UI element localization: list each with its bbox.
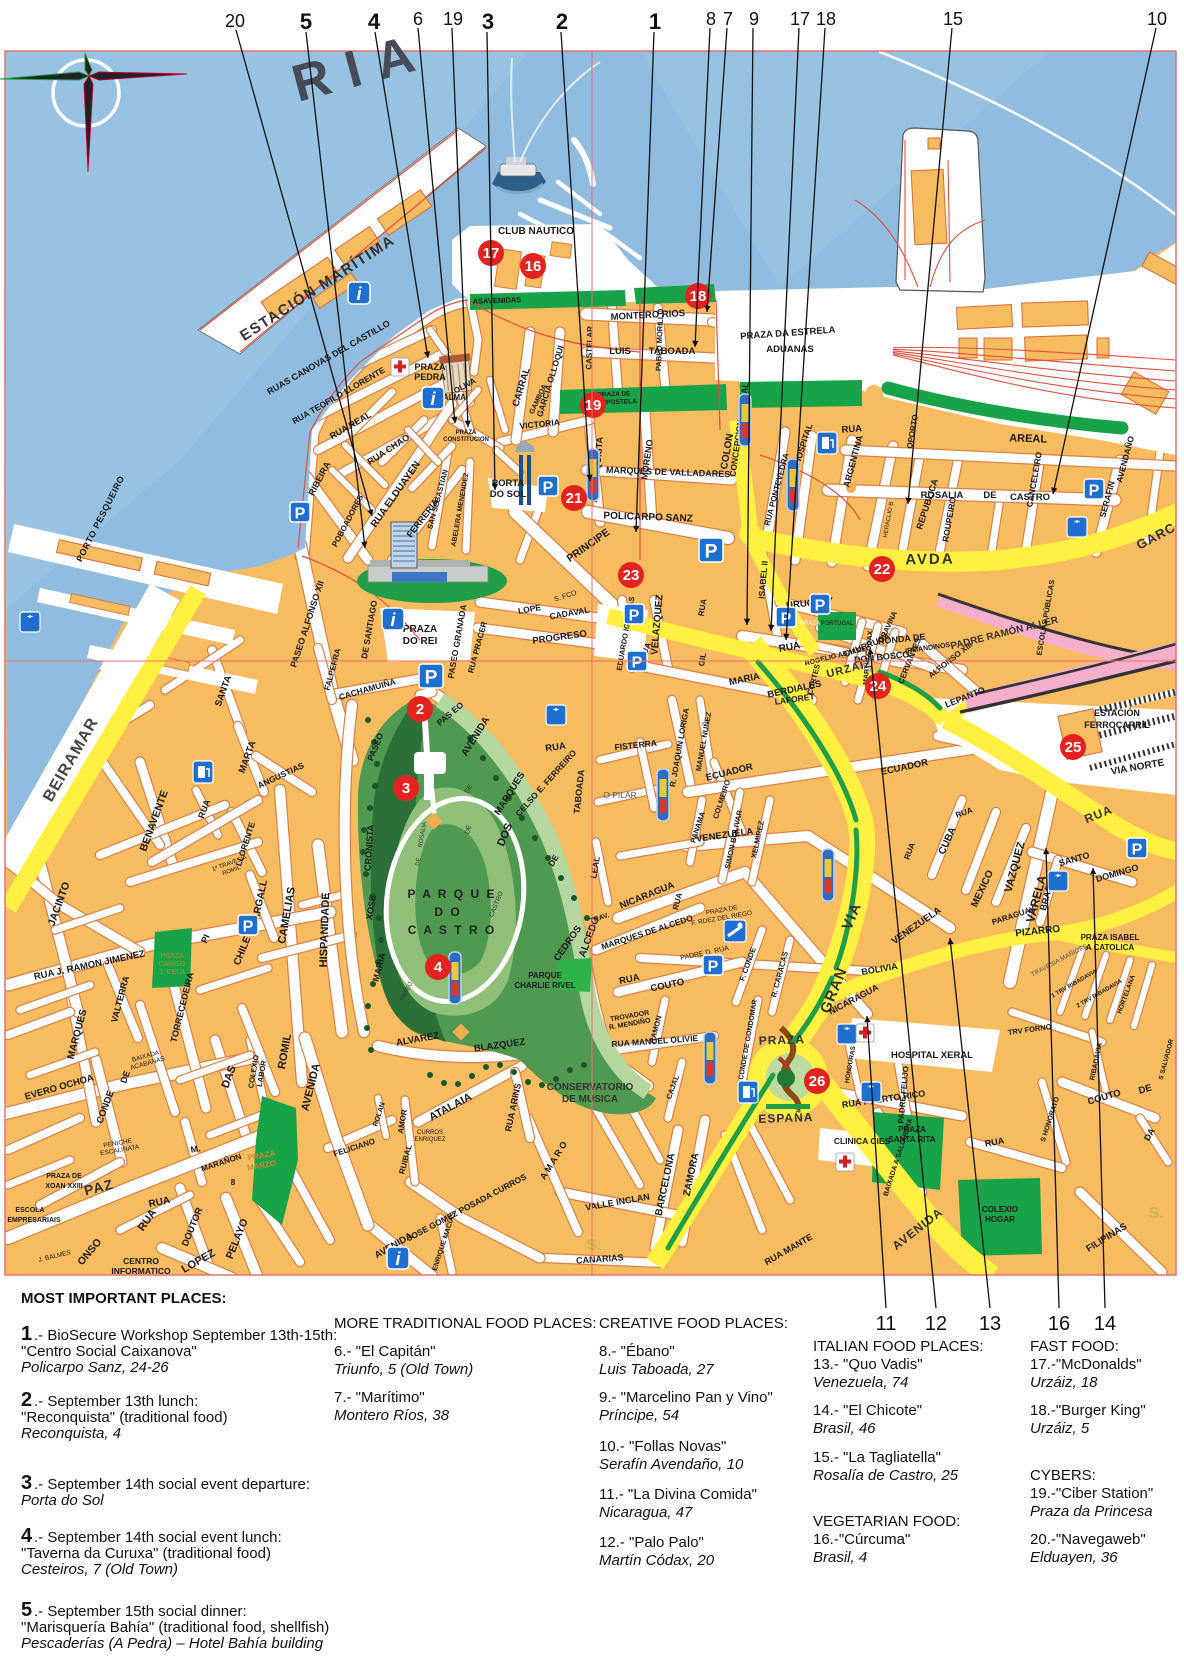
svg-text:P: P: [629, 607, 640, 624]
svg-text:CURROS: CURROS: [417, 1130, 443, 1136]
svg-text:FAST FOOD:: FAST FOOD:: [1030, 1338, 1119, 1355]
svg-text:.- September 13th lunch:: .- September 13th lunch:: [34, 1393, 198, 1410]
svg-text:CAMILO: CAMILO: [159, 961, 186, 968]
svg-text:ITALIAN FOOD PLACES:: ITALIAN FOOD PLACES:: [813, 1338, 984, 1355]
svg-text:ASAVENIDAS: ASAVENIDAS: [472, 295, 521, 306]
svg-text:M.: M.: [190, 1143, 202, 1155]
svg-text:ADUANAS: ADUANAS: [766, 344, 814, 355]
svg-text:PRAZA: PRAZA: [758, 1032, 805, 1048]
svg-text:MOST IMPORTANT PLACES:: MOST IMPORTANT PLACES:: [21, 1290, 227, 1307]
svg-text:CENTRO: CENTRO: [123, 1256, 159, 1266]
svg-text:HOGAR: HOGAR: [985, 1215, 1015, 1224]
svg-text:PEDRA: PEDRA: [414, 372, 446, 382]
svg-text:15: 15: [943, 9, 963, 29]
svg-text:P: P: [708, 958, 719, 975]
svg-text:Cesteiros, 7 (Old Town): Cesteiros, 7 (Old Town): [21, 1561, 178, 1578]
svg-text:Rosalía de Castro, 25: Rosalía de Castro, 25: [813, 1467, 959, 1484]
svg-text:11: 11: [876, 1313, 897, 1335]
svg-text:P: P: [781, 610, 792, 627]
svg-text:VEGETARIAN FOOD:: VEGETARIAN FOOD:: [813, 1513, 960, 1530]
svg-text:Venezuela, 74: Venezuela, 74: [813, 1374, 908, 1391]
svg-text:RUA: RUA: [841, 423, 862, 435]
svg-text:ESCOLA: ESCOLA: [15, 1207, 44, 1214]
svg-text:9.- "Marcelino Pan y Vino": 9.- "Marcelino Pan y Vino": [599, 1389, 773, 1406]
svg-text:8: 8: [706, 9, 716, 29]
svg-text:PRAZA: PRAZA: [456, 430, 477, 436]
svg-text:20.-"Navegaweb": 20.-"Navegaweb": [1030, 1531, 1146, 1548]
svg-text:D O: D O: [434, 905, 461, 919]
svg-text:4: 4: [434, 959, 443, 976]
svg-text:Brasil, 46: Brasil, 46: [813, 1420, 876, 1437]
svg-text:11.- "La Divina Comida": 11.- "La Divina Comida": [599, 1486, 757, 1503]
svg-text:"Centro Social Caixanova": "Centro Social Caixanova": [21, 1343, 197, 1360]
svg-text:SANTA RITA: SANTA RITA: [889, 1135, 936, 1144]
svg-text:10: 10: [1147, 9, 1167, 29]
svg-text:16: 16: [525, 258, 542, 275]
svg-text:C A S T R O: C A S T R O: [408, 923, 496, 937]
svg-text:20: 20: [225, 11, 245, 31]
svg-text:21: 21: [566, 490, 583, 507]
svg-text:P: P: [632, 654, 643, 671]
svg-text:CYBERS:: CYBERS:: [1030, 1467, 1096, 1484]
svg-text:FERROCARRIL: FERROCARRIL: [1084, 720, 1150, 730]
svg-text:"Marisquería Bahía" (tradition: "Marisquería Bahía" (traditional food, s…: [21, 1619, 329, 1636]
svg-text:5: 5: [21, 1599, 32, 1621]
svg-text:Príncipe, 54: Príncipe, 54: [599, 1407, 679, 1424]
svg-text:2: 2: [556, 9, 568, 34]
svg-text:9: 9: [749, 9, 759, 29]
svg-text:P: P: [815, 597, 826, 614]
svg-text:3: 3: [21, 1472, 32, 1494]
svg-text:PRAZA ISABEL: PRAZA ISABEL: [1081, 933, 1140, 942]
svg-text:19.-"Ciber Station": 19.-"Ciber Station": [1030, 1485, 1153, 1502]
svg-text:A CATOLICA: A CATOLICA: [1086, 943, 1135, 952]
svg-text:CHARLIE RIVEL: CHARLIE RIVEL: [514, 981, 575, 990]
svg-text:PRAZA DE: PRAZA DE: [46, 1173, 82, 1180]
svg-text:10.- "Follas Novas": 10.- "Follas Novas": [599, 1438, 726, 1455]
svg-text:Porta do Sol: Porta do Sol: [21, 1492, 104, 1509]
svg-text:Martín Códax, 20: Martín Códax, 20: [599, 1552, 715, 1569]
svg-text:13: 13: [979, 1313, 1001, 1335]
svg-text:CONSTITUCION: CONSTITUCION: [443, 437, 489, 443]
svg-text:5: 5: [300, 9, 312, 34]
svg-text:P: P: [425, 668, 438, 689]
svg-text:ENRIQUEZ: ENRIQUEZ: [414, 1137, 445, 1143]
svg-text:19: 19: [443, 9, 463, 29]
svg-text:CASTELAR: CASTELAR: [584, 326, 595, 370]
svg-text:14: 14: [1094, 1313, 1116, 1335]
svg-text:26: 26: [809, 1073, 826, 1090]
svg-text:LUIS: LUIS: [609, 346, 631, 357]
svg-text:PRAZA: PRAZA: [415, 362, 446, 372]
svg-text:Urzáiz, 18: Urzáiz, 18: [1030, 1374, 1098, 1391]
svg-text:S.: S.: [1148, 1205, 1163, 1222]
svg-text:COLEXIO: COLEXIO: [982, 1205, 1018, 1214]
svg-text:7: 7: [723, 9, 733, 29]
svg-text:Montero Ríos, 38: Montero Ríos, 38: [334, 1407, 450, 1424]
svg-text:24: 24: [870, 678, 887, 695]
svg-text:17: 17: [790, 9, 810, 29]
svg-text:2: 2: [21, 1389, 32, 1411]
svg-text:P: P: [1132, 841, 1143, 858]
svg-text:8: 8: [231, 1178, 236, 1187]
svg-text:P: P: [1089, 482, 1100, 499]
svg-text:PRAZA: PRAZA: [403, 624, 437, 635]
svg-text:16.-"Cúrcuma": 16.-"Cúrcuma": [813, 1531, 910, 1548]
svg-text:S.: S.: [586, 1237, 601, 1254]
svg-text:.- September 14th social event: .- September 14th social event lunch:: [34, 1529, 282, 1546]
svg-text:4: 4: [21, 1525, 33, 1547]
svg-text:P: P: [243, 918, 254, 935]
svg-text:DO REI: DO REI: [403, 636, 438, 647]
svg-text:ESTACIÓN: ESTACIÓN: [1094, 707, 1140, 718]
svg-text:6: 6: [413, 9, 423, 29]
svg-text:13.- "Quo Vadis": 13.- "Quo Vadis": [813, 1356, 923, 1373]
svg-text:14.- "El Chicote": 14.- "El Chicote": [813, 1402, 922, 1419]
svg-text:DE MUSICA: DE MUSICA: [562, 1094, 618, 1105]
svg-text:Urzáiz, 5: Urzáiz, 5: [1030, 1420, 1090, 1437]
svg-text:XOAN XXIII: XOAN XXIII: [45, 1183, 82, 1190]
svg-text:12: 12: [925, 1313, 947, 1335]
svg-text:7.- "Marítimo": 7.- "Marítimo": [334, 1389, 425, 1406]
svg-text:19: 19: [585, 397, 602, 414]
svg-text:Elduayen, 36: Elduayen, 36: [1030, 1549, 1118, 1566]
svg-text:16: 16: [1048, 1313, 1070, 1335]
svg-text:CLINICA CIES: CLINICA CIES: [834, 1136, 891, 1146]
svg-text:TABOADA: TABOADA: [649, 346, 696, 357]
svg-text:Policarpo Sanz, 24-26: Policarpo Sanz, 24-26: [21, 1359, 169, 1376]
svg-text:18.-"Burger King": 18.-"Burger King": [1030, 1402, 1146, 1419]
svg-text:6.- "El Capitán": 6.- "El Capitán": [334, 1343, 436, 1360]
svg-text:DO SOL: DO SOL: [490, 489, 527, 500]
svg-text:Luis Taboada, 27: Luis Taboada, 27: [599, 1361, 714, 1378]
svg-text:2: 2: [416, 701, 424, 718]
svg-text:12.- "Palo Palo": 12.- "Palo Palo": [599, 1534, 704, 1551]
svg-text:PARQUE: PARQUE: [528, 971, 562, 980]
svg-text:PRAZA: PRAZA: [160, 953, 184, 960]
svg-text:25: 25: [1065, 739, 1082, 756]
svg-text:"Taverna da Curuxa" (tradition: "Taverna da Curuxa" (traditional food): [21, 1545, 271, 1562]
svg-text:P: P: [705, 542, 718, 563]
svg-text:AREAL: AREAL: [1009, 432, 1048, 445]
svg-text:8.- "Ébano": 8.- "Ébano": [599, 1343, 675, 1360]
svg-text:EMPRESARIAIS: EMPRESARIAIS: [7, 1217, 61, 1224]
svg-text:3: 3: [402, 780, 410, 797]
svg-text:Pescaderías (A Pedra) – Hotel: Pescaderías (A Pedra) – Hotel Bahía buil…: [21, 1635, 324, 1652]
svg-text:.- September 15th social dinne: .- September 15th social dinner:: [34, 1603, 247, 1620]
svg-text:Serafín Avendaño, 10: Serafín Avendaño, 10: [599, 1456, 744, 1473]
svg-text:P A R Q U E: P A R Q U E: [408, 887, 497, 901]
svg-text:4: 4: [368, 9, 381, 34]
svg-text:15.- "La Tagliatella": 15.- "La Tagliatella": [813, 1449, 941, 1466]
svg-text:23: 23: [623, 567, 640, 584]
svg-text:AVDA: AVDA: [905, 551, 955, 569]
svg-text:.- BioSecure Workshop Septembe: .- BioSecure Workshop September 13th-15t…: [34, 1327, 337, 1344]
svg-text:HOSPITAL XERAL: HOSPITAL XERAL: [891, 1050, 973, 1061]
svg-text:"Reconquista" (traditional foo: "Reconquista" (traditional food): [21, 1409, 228, 1426]
svg-text:Nicaragua, 47: Nicaragua, 47: [599, 1504, 693, 1521]
svg-text:CONSERVATORIO: CONSERVATORIO: [547, 1082, 634, 1093]
svg-text:PORTUGAL: PORTUGAL: [821, 621, 855, 627]
svg-text:O PILAR: O PILAR: [603, 790, 637, 800]
svg-text:Praza da Princesa: Praza da Princesa: [1030, 1503, 1153, 1520]
svg-text:P: P: [295, 505, 306, 522]
svg-text:.- September 14th social event: .- September 14th social event departure…: [34, 1476, 310, 1493]
svg-text:PORTA: PORTA: [492, 478, 525, 489]
svg-text:DE: DE: [983, 490, 996, 501]
svg-text:22: 22: [874, 561, 891, 578]
svg-text:P: P: [543, 479, 554, 496]
svg-text:MORE TRADITIONAL FOOD PLACES:: MORE TRADITIONAL FOOD PLACES:: [334, 1315, 597, 1332]
svg-text:Reconquista, 4: Reconquista, 4: [21, 1425, 121, 1442]
svg-text:Brasil, 4: Brasil, 4: [813, 1549, 867, 1566]
svg-text:1: 1: [649, 9, 661, 34]
svg-text:CLUB NAUTICO: CLUB NAUTICO: [498, 226, 574, 237]
svg-text:18: 18: [816, 9, 836, 29]
svg-text:17.-"McDonalds": 17.-"McDonalds": [1030, 1356, 1142, 1373]
svg-text:J. CELA: J. CELA: [159, 969, 185, 976]
svg-text:PRAZA: PRAZA: [800, 621, 820, 627]
svg-text:Triunfo, 5 (Old Town): Triunfo, 5 (Old Town): [334, 1361, 473, 1378]
svg-text:ESPAÑA: ESPAÑA: [758, 1109, 814, 1126]
svg-text:1: 1: [21, 1323, 32, 1345]
svg-text:CREATIVE FOOD PLACES:: CREATIVE FOOD PLACES:: [599, 1315, 788, 1332]
svg-text:3: 3: [482, 9, 494, 34]
